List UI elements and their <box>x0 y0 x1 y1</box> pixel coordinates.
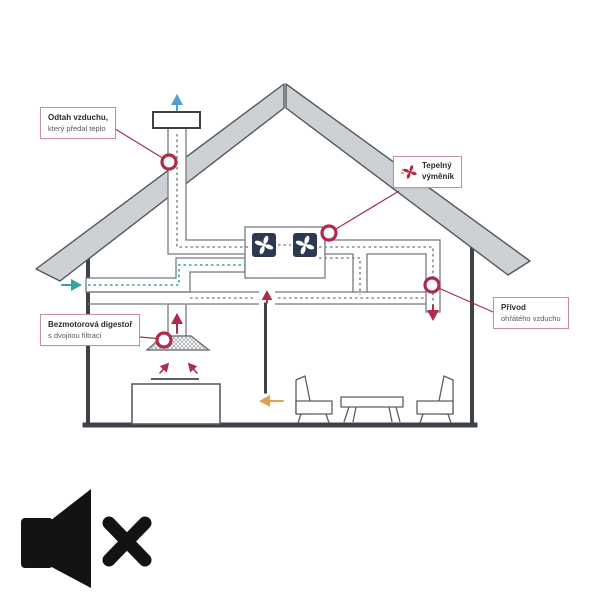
mute-x-icon <box>109 523 145 560</box>
steam-arrow-left <box>160 364 168 373</box>
label-heat-exchanger: Tepelný výměník <box>393 156 462 188</box>
speaker-muted-icon[interactable] <box>21 489 145 588</box>
leader-heat-exchanger <box>331 191 399 232</box>
coffee-table <box>341 397 403 422</box>
label-supply-air-title: Přívod <box>501 302 561 314</box>
armchair-left <box>296 376 332 423</box>
circle-marker-exhaust <box>162 155 176 169</box>
intake-duct <box>86 258 245 292</box>
label-exhaust-air-subtitle: který předal teplo <box>48 124 108 135</box>
supply-airflow-dash <box>319 247 433 303</box>
label-cooker-hood-title: Bezmotorová digestoř <box>48 319 132 331</box>
label-supply-air: Přívod ohřátého vzduchu <box>493 297 569 329</box>
fan-icon <box>401 164 417 180</box>
label-cooker-hood-subtitle: s dvojitou filtrací <box>48 331 132 342</box>
label-heat-exchanger-line2: výměník <box>422 172 454 183</box>
label-cooker-hood: Bezmotorová digestoř s dvojitou filtrací <box>40 314 140 346</box>
supply-duct <box>325 240 440 312</box>
label-exhaust-air: Odtah vzduchu, který předal teplo <box>40 107 116 139</box>
leader-supply <box>434 286 493 312</box>
steam-arrow-right <box>189 364 197 373</box>
ventilation-diagram-page: Odtah vzduchu, který předal teplo Tepeln… <box>0 0 600 600</box>
leader-exhaust <box>112 127 169 162</box>
counter <box>132 384 220 424</box>
speaker-horn <box>46 489 91 588</box>
label-heat-exchanger-line1: Tepelný <box>422 161 454 172</box>
chimney-cap <box>153 112 200 128</box>
armchair-right <box>417 376 453 423</box>
label-supply-air-subtitle: ohřátého vzduchu <box>501 314 561 325</box>
circle-marker-heat-exchanger <box>322 226 336 240</box>
stove-counter <box>132 379 220 424</box>
living-room-furniture <box>296 376 453 423</box>
circle-marker-supply <box>425 278 439 292</box>
label-exhaust-air-title: Odtah vzduchu, <box>48 112 108 124</box>
ceiling-duct <box>88 292 426 304</box>
circle-marker-hood <box>157 333 171 347</box>
